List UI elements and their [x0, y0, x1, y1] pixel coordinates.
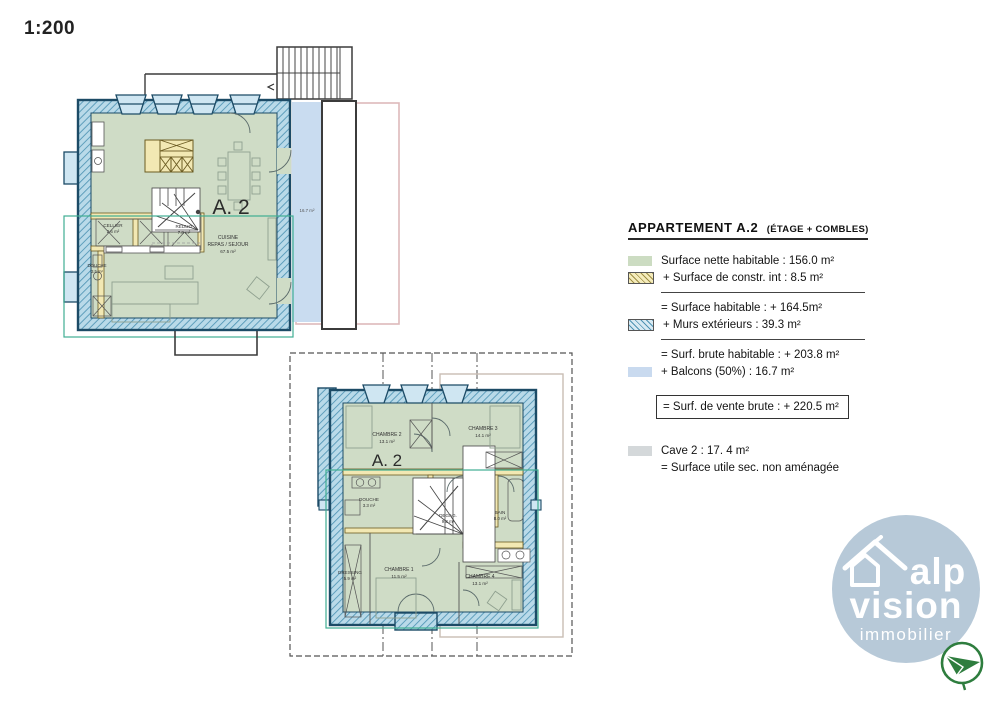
room-label: DEGAG. [439, 513, 457, 518]
balcony-area-label: 16.7 m² [300, 208, 315, 213]
unit-label: A. 2 [212, 196, 249, 219]
paper-plane-badge-icon [938, 640, 988, 692]
floorplan-sheet: 1:200 [0, 0, 1000, 706]
window-bay [531, 500, 541, 510]
legend-row-habitable: = Surface habitable : + 164.5m² [628, 302, 880, 314]
room-label: DOUCHE [359, 497, 379, 502]
swatch-green [628, 256, 652, 266]
room-label: DRESSING [338, 570, 362, 575]
external-staircase [145, 47, 352, 99]
room-area: 67.5 m² [220, 249, 236, 254]
room-area: 5.9 m² [344, 576, 357, 581]
legend-cave-block: Cave 2 : 17. 4 m² = Surface utile sec. n… [628, 445, 880, 474]
unit-label: A. 2 [372, 451, 402, 470]
plan-combles: A. 2 CHAMBRE 2 13.1 m² CHAMBRE 3 14.1 m²… [290, 353, 572, 656]
legend-text: = Surf. brute habitable : + 203.8 m² [661, 349, 839, 361]
legend-text: Cave 2 : 17. 4 m² [661, 445, 749, 457]
swatch-yellow-hatch [628, 272, 654, 284]
legend-row-cave-note: = Surface utile sec. non aménagée [628, 462, 880, 474]
legend-row-balcons: + Balcons (50%) : 16.7 m² [628, 366, 880, 378]
room-area: 9.3 m² [442, 519, 455, 524]
logo-word-alp: alp [910, 557, 966, 587]
room-area: 3.3 m² [363, 503, 376, 508]
legend-text: + Murs extérieurs : 39.3 m² [663, 319, 801, 331]
legend-row-murs: + Murs extérieurs : 39.3 m² [628, 319, 880, 331]
room-label2: REPAS / SEJOUR [207, 242, 248, 248]
room-label: DOUCHE [87, 263, 106, 268]
room-area: 7.8 m² [178, 230, 191, 235]
legend-text: = Surface utile sec. non aménagée [661, 462, 839, 474]
legend-row-cave: Cave 2 : 17. 4 m² [628, 445, 880, 457]
legend-text: = Surface habitable : + 164.5m² [661, 302, 822, 314]
room-label: RÉDUIT [175, 223, 192, 229]
lower-balcony-outline [175, 331, 257, 355]
legend-separator [661, 339, 865, 340]
kitchen-island [145, 140, 193, 172]
house-mountain-icon [842, 535, 908, 587]
legend-separator [661, 292, 865, 293]
room-area: 14.1 m² [475, 433, 491, 438]
room-area: 2.6 m² [107, 229, 120, 234]
shaft-outline [322, 101, 356, 329]
room-area: 3.5 m² [91, 269, 103, 274]
legend-text: = Surf. de vente brute : + 220.5 m² [663, 401, 839, 413]
room-area: 8.0 m² [494, 516, 507, 521]
swatch-spacer [628, 303, 652, 313]
legend-title: APPARTEMENT A.2 (ÉTAGE + COMBLES) [628, 220, 868, 240]
legend-total-box: = Surf. de vente brute : + 220.5 m² [656, 395, 849, 419]
room-label: CHAMBRE 1 [384, 567, 413, 573]
legend-row-brute: = Surf. brute habitable : + 203.8 m² [628, 349, 880, 361]
swatch-spacer [628, 350, 652, 360]
room-label: CELLIER [103, 223, 123, 228]
swatch-spacer [628, 463, 652, 473]
room-label: CUISINE [218, 235, 239, 241]
legend-title-main: APPARTEMENT A.2 [628, 220, 758, 235]
room-label: CHAMBRE 4 [465, 574, 494, 580]
swatch-gray [628, 446, 652, 456]
plan-etage: A. 2 CELLIER 2.6 m² RÉDUIT 7.8 m² CUISIN… [64, 47, 399, 355]
window-bay [319, 500, 329, 510]
room-label: CHAMBRE 2 [372, 432, 401, 438]
room-area: 13.1 m² [379, 439, 395, 444]
legend-row-constr-int: + Surface de constr. int : 8.5 m² [628, 272, 880, 284]
room-label: CHAMBRE 3 [468, 426, 497, 432]
room-area: 13.1 m² [472, 581, 488, 586]
logo-top-row: alp [842, 535, 966, 587]
swatch-blue-hatch [628, 319, 654, 331]
legend-title-suffix: (ÉTAGE + COMBLES) [767, 224, 869, 235]
room-area: 11.5 m² [391, 574, 407, 579]
legend-row-net-surface: Surface nette habitable : 156.0 m² [628, 255, 880, 267]
legend-text: + Surface de constr. int : 8.5 m² [663, 272, 823, 284]
logo-word-vision: vision [850, 589, 963, 623]
swatch-blue [628, 367, 652, 377]
legend-text: + Balcons (50%) : 16.7 m² [661, 366, 794, 378]
room-label: BAIN [495, 510, 506, 515]
window-bays [363, 385, 468, 403]
legend-panel: APPARTEMENT A.2 (ÉTAGE + COMBLES) Surfac… [628, 220, 880, 479]
legend-text: Surface nette habitable : 156.0 m² [661, 255, 834, 267]
